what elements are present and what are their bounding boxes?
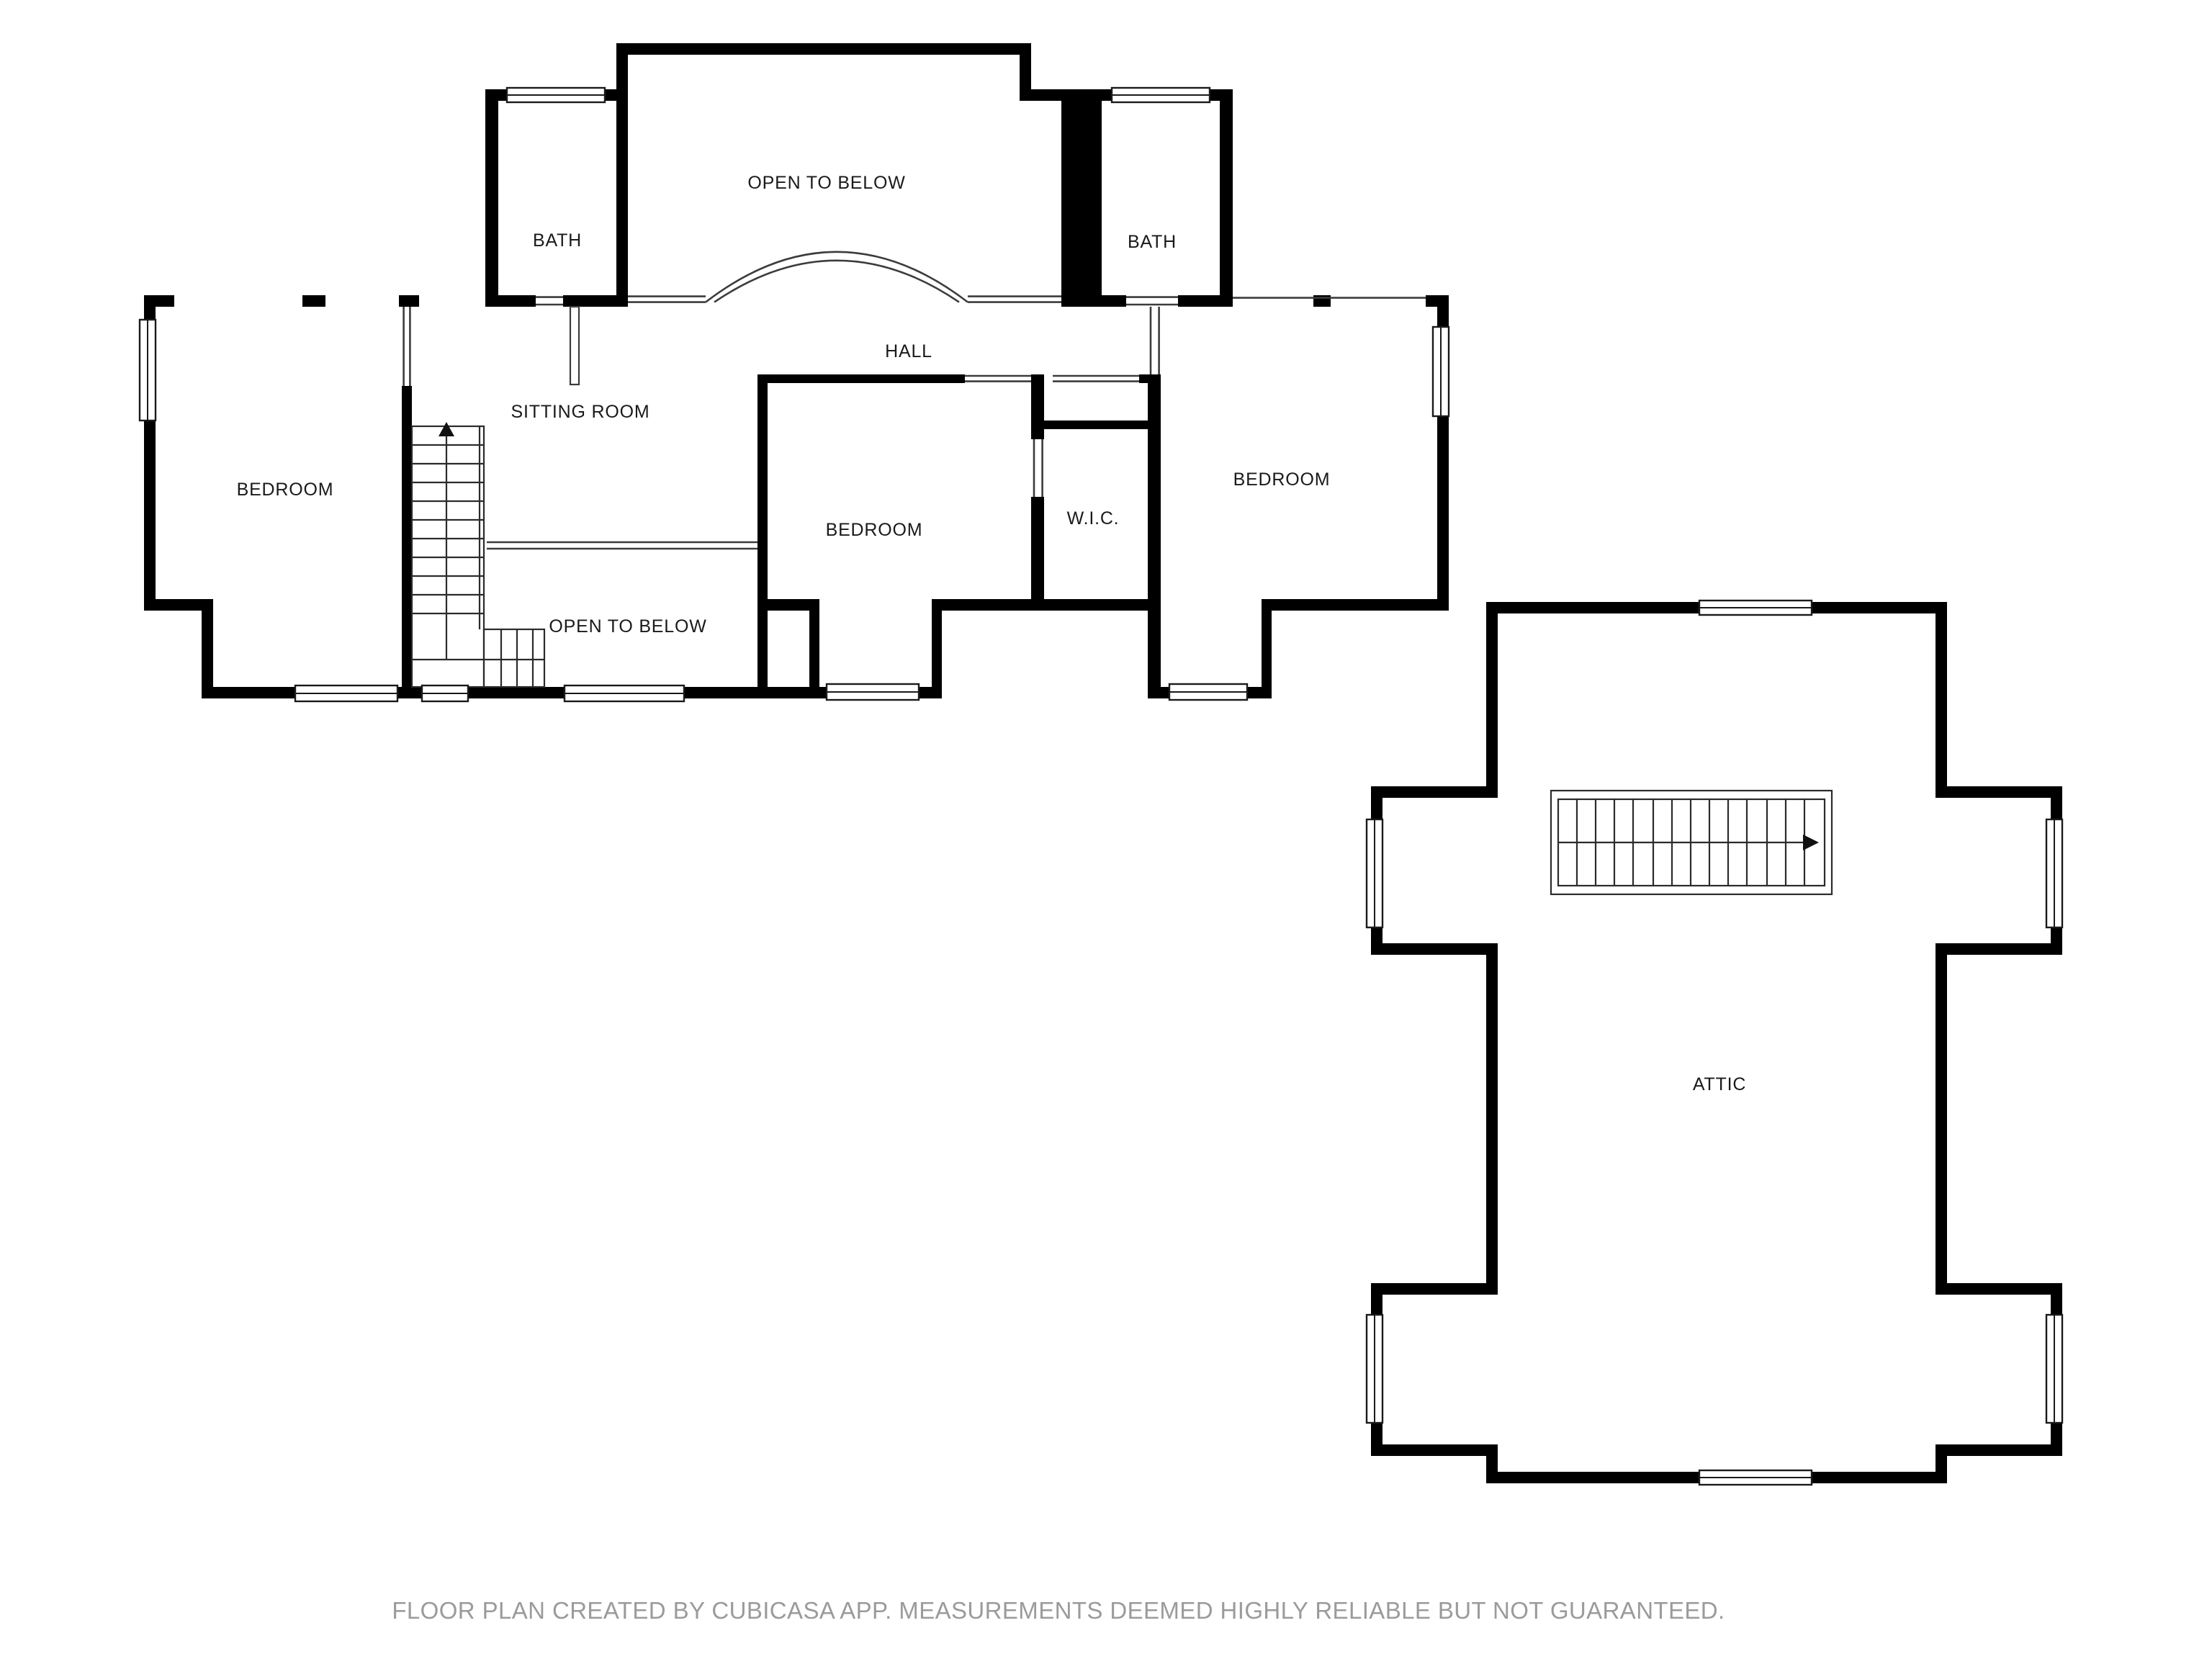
window-symbol [140, 320, 156, 421]
window-symbol [422, 685, 468, 701]
floor-plan-drawing [0, 0, 2212, 1659]
room-label-open-to-below-top: OPEN TO BELOW [747, 173, 905, 193]
room-label-sitting-room: SITTING ROOM [511, 402, 650, 422]
window-symbol [565, 685, 684, 701]
room-label-wic: W.I.C. [1067, 508, 1120, 529]
window-symbol [2046, 1315, 2062, 1423]
walls-middle-rooms [757, 374, 1161, 698]
room-label-open-to-below-small: OPEN TO BELOW [549, 616, 706, 637]
staircase-symbol-attic [1551, 791, 1832, 894]
window-symbol [827, 684, 919, 700]
room-label-bath-right: BATH [1128, 232, 1177, 252]
window-symbol [1112, 88, 1210, 102]
room-label-bedroom-left: BEDROOM [237, 480, 334, 500]
archway-symbol [628, 252, 1061, 302]
walls-right-bedroom [1148, 295, 1449, 698]
room-label-hall: HALL [885, 341, 932, 361]
room-label-attic: ATTIC [1693, 1074, 1746, 1094]
walls-attic [1371, 602, 2062, 1483]
window-symbol [1367, 819, 1382, 927]
window-symbol [295, 685, 397, 701]
staircase-symbol-main [412, 422, 544, 687]
window-symbol [507, 88, 605, 102]
footer-disclaimer: FLOOR PLAN CREATED BY CUBICASA APP. MEAS… [0, 1599, 2117, 1626]
railing-symbol [487, 542, 757, 549]
room-label-bath-left: BATH [533, 230, 582, 251]
window-symbol [1169, 684, 1247, 700]
door-leaf-symbol [570, 307, 579, 385]
window-symbol [1699, 601, 1812, 615]
door-opening-lines [404, 297, 1426, 497]
room-label-bedroom-right: BEDROOM [1233, 469, 1331, 490]
floor-plan-page: BATH OPEN TO BELOW BATH HALL SITTING ROO… [0, 0, 2212, 1659]
window-symbol [1367, 1315, 1382, 1423]
window-symbol [2046, 819, 2062, 927]
window-symbol [1699, 1470, 1812, 1485]
stair-right-arrow-icon [1803, 835, 1819, 850]
window-symbol [1433, 327, 1449, 416]
stair-up-arrow-icon [439, 422, 454, 436]
room-label-bedroom-middle: BEDROOM [826, 520, 923, 540]
